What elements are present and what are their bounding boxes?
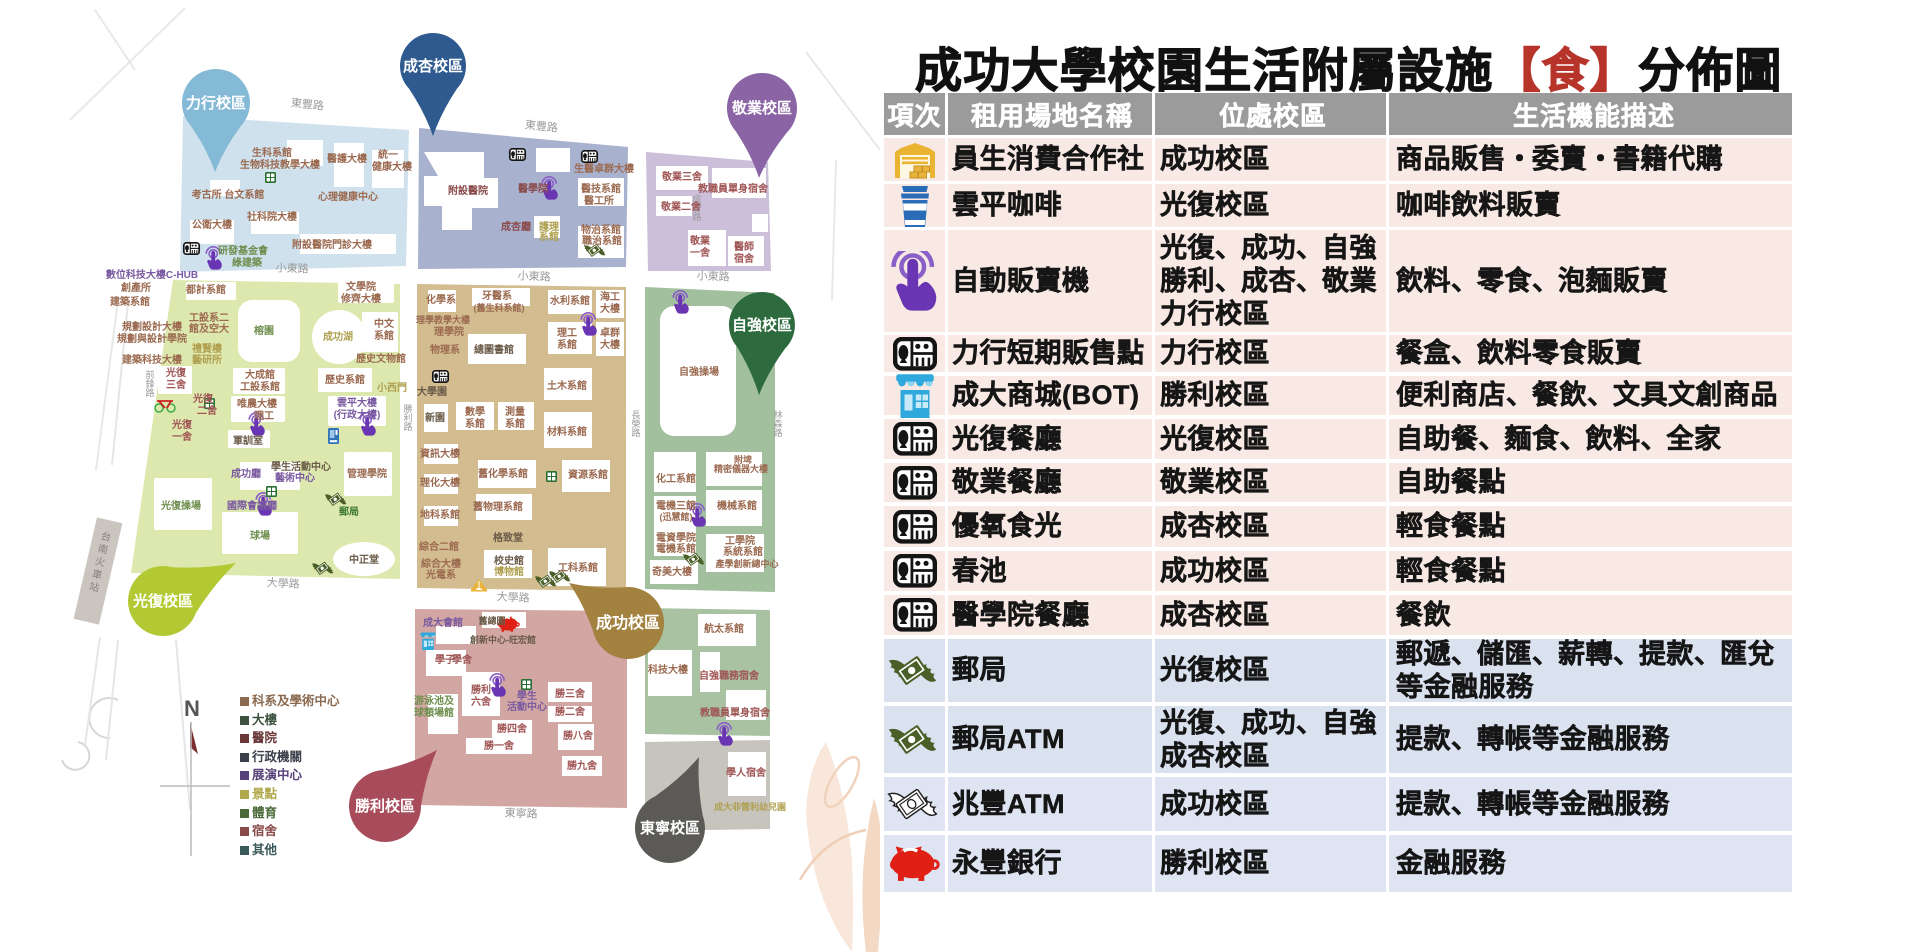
svg-text:電資學院: 電資學院 [656, 531, 696, 544]
svg-text:醫院: 醫院 [252, 730, 278, 745]
svg-text:舊總圖: 舊總圖 [478, 615, 505, 626]
svg-text:理學教學大樓: 理學教學大樓 [416, 314, 470, 325]
svg-text:榕園: 榕園 [254, 324, 274, 337]
svg-text:科系及學術中心: 科系及學術中心 [252, 693, 340, 708]
svg-text:新園: 新園 [425, 411, 445, 424]
svg-text:物理系: 物理系 [430, 343, 460, 356]
svg-text:規劃設計大樓: 規劃設計大樓 [122, 320, 182, 333]
svg-text:前鋒路: 前鋒路 [145, 369, 154, 398]
svg-text:生物科技教學大樓: 生物科技教學大樓 [240, 158, 320, 171]
svg-text:展演中心: 展演中心 [252, 767, 303, 782]
svg-text:地科系館: 地科系館 [420, 508, 460, 521]
svg-text:東寧路: 東寧路 [504, 805, 537, 820]
svg-text:牙醫系: 牙醫系 [482, 289, 512, 302]
svg-text:自強職務宿舍: 自強職務宿舍 [699, 669, 760, 682]
svg-text:心理健康中心: 心理健康中心 [318, 190, 378, 203]
svg-text:成功廳: 成功廳 [231, 467, 261, 480]
svg-text:附設醫院門診大樓: 附設醫院門診大樓 [292, 238, 372, 251]
svg-text:文學院: 文學院 [346, 280, 376, 293]
svg-text:化學系: 化學系 [426, 293, 456, 306]
svg-text:勝利路: 勝利路 [403, 403, 412, 432]
svg-text:六舍: 六舍 [471, 695, 492, 708]
svg-text:國際會議廳: 國際會議廳 [227, 499, 277, 512]
svg-text:景點: 景點 [252, 786, 278, 801]
svg-text:水利系館: 水利系館 [549, 294, 590, 307]
svg-text:規劃與設計學院: 規劃與設計學院 [117, 332, 187, 345]
svg-text:生科系館: 生科系館 [252, 146, 292, 159]
svg-text:雲平大樓: 雲平大樓 [337, 396, 377, 409]
svg-text:勝八舍: 勝八舍 [563, 729, 594, 742]
svg-text:建築系館: 建築系館 [109, 295, 150, 308]
svg-text:(行政大樓): (行政大樓) [334, 408, 381, 421]
svg-text:研發基金會: 研發基金會 [218, 244, 269, 257]
svg-text:大學園: 大學園 [417, 385, 447, 398]
svg-text:其他: 其他 [252, 842, 278, 857]
svg-text:自強操場: 自強操場 [679, 365, 719, 378]
svg-text:東豐路: 東豐路 [524, 118, 558, 134]
svg-text:東寧校區: 東寧校區 [640, 819, 700, 837]
svg-text:舊化學系館: 舊化學系館 [477, 467, 528, 480]
svg-text:職治系館: 職治系館 [582, 234, 622, 247]
svg-text:醫護大樓: 醫護大樓 [327, 152, 367, 165]
svg-text:(迅慧館): (迅慧館) [660, 511, 693, 522]
svg-text:資源系館: 資源系館 [568, 468, 608, 481]
svg-text:工設系二: 工設系二 [189, 311, 229, 324]
svg-text:理工: 理工 [557, 327, 577, 339]
svg-text:社科院大樓: 社科院大樓 [246, 210, 297, 223]
svg-text:電機系館: 電機系館 [656, 542, 696, 555]
svg-text:勝利: 勝利 [471, 683, 491, 696]
svg-text:成功湖: 成功湖 [323, 330, 353, 343]
svg-text:數位科技大樓C-HUB: 數位科技大樓C-HUB [106, 268, 198, 281]
svg-text:舊物理系館: 舊物理系館 [472, 500, 523, 513]
svg-text:小東路: 小東路 [696, 269, 729, 283]
svg-text:成大非營利幼兒園: 成大非營利幼兒園 [714, 801, 786, 812]
svg-text:科技大樓: 科技大樓 [648, 663, 688, 676]
svg-text:小東路: 小東路 [275, 261, 308, 275]
svg-text:大樓: 大樓 [600, 338, 620, 351]
svg-text:系統系館: 系統系館 [723, 545, 763, 558]
svg-text:成功校區: 成功校區 [596, 613, 660, 632]
svg-text:系館: 系館 [557, 338, 577, 351]
svg-text:大學路: 大學路 [496, 589, 530, 605]
svg-text:醫學院: 醫學院 [518, 182, 548, 195]
svg-text:工設系館: 工設系館 [240, 380, 280, 393]
svg-text:勝利校區: 勝利校區 [355, 797, 415, 815]
svg-text:附設醫院: 附設醫院 [448, 184, 488, 197]
svg-text:系館: 系館 [505, 417, 525, 430]
svg-text:醫師: 醫師 [734, 240, 754, 253]
svg-text:成杏校區: 成杏校區 [403, 57, 463, 75]
svg-text:機械系館: 機械系館 [717, 499, 757, 512]
svg-text:敬業二舍: 敬業二舍 [660, 200, 702, 213]
svg-text:系館: 系館 [539, 230, 559, 243]
svg-text:東豐路: 東豐路 [290, 96, 324, 112]
svg-text:工學院: 工學院 [725, 534, 755, 547]
svg-text:禮賢樓: 禮賢樓 [192, 342, 222, 355]
svg-text:光復: 光復 [165, 366, 187, 379]
svg-text:力行校區: 力行校區 [186, 94, 246, 112]
svg-text:土木系館: 土木系館 [547, 379, 587, 392]
svg-text:航太系館: 航太系館 [704, 622, 744, 635]
svg-text:勝二舍: 勝二舍 [555, 705, 586, 718]
svg-text:醫工所: 醫工所 [584, 194, 614, 207]
svg-text:資訊大樓: 資訊大樓 [420, 447, 460, 460]
svg-text:體育: 體育 [252, 805, 278, 820]
svg-text:綜合大樓: 綜合大樓 [421, 557, 461, 570]
svg-text:小東路: 小東路 [517, 269, 550, 283]
svg-text:勝四舍: 勝四舍 [497, 722, 528, 735]
svg-text:光復校區: 光復校區 [132, 592, 193, 610]
svg-text:學生: 學生 [517, 689, 537, 702]
svg-text:理化大樓: 理化大樓 [420, 476, 460, 489]
svg-text:行政機關: 行政機關 [251, 749, 302, 764]
svg-text:理工: 理工 [254, 410, 274, 422]
svg-text:考古所 台文系館: 考古所 台文系館 [192, 188, 265, 201]
svg-text:測量: 測量 [505, 405, 525, 418]
svg-text:敬業: 敬業 [689, 234, 711, 247]
svg-text:大學路: 大學路 [266, 575, 300, 591]
svg-text:化工系館: 化工系館 [656, 472, 696, 485]
svg-text:公衛大樓: 公衛大樓 [192, 218, 232, 231]
svg-text:(舊生科系館): (舊生科系館) [474, 302, 525, 313]
svg-text:健康大樓: 健康大樓 [372, 160, 412, 173]
svg-text:宿舍: 宿舍 [734, 252, 755, 265]
svg-text:大樓: 大樓 [252, 712, 278, 727]
svg-text:工科系館: 工科系館 [558, 561, 598, 574]
svg-text:統一: 統一 [378, 148, 398, 161]
svg-text:藝術中心: 藝術中心 [275, 471, 315, 484]
svg-text:球類場館: 球類場館 [414, 706, 454, 719]
svg-text:N: N [184, 696, 200, 721]
svg-text:敬業三舍: 敬業三舍 [661, 170, 703, 183]
svg-text:都計系館: 都計系館 [185, 283, 226, 296]
svg-text:系館: 系館 [465, 417, 485, 430]
svg-text:光復: 光復 [192, 392, 214, 405]
svg-text:勝九舍: 勝九舍 [567, 759, 598, 772]
svg-text:游泳池及: 游泳池及 [414, 694, 455, 707]
svg-text:光電系: 光電系 [425, 568, 456, 581]
svg-text:學人宿舍: 學人宿舍 [726, 766, 767, 779]
svg-text:總圖書館: 總圖書館 [474, 343, 514, 356]
svg-text:郵局: 郵局 [339, 505, 359, 518]
svg-text:創新中心-旺宏館: 創新中心-旺宏館 [469, 634, 536, 645]
svg-text:醫技系館: 醫技系館 [581, 182, 621, 195]
svg-text:教職員單身宿舍: 教職員單身宿舍 [697, 182, 769, 195]
svg-text:林森路: 林森路 [773, 409, 782, 438]
svg-text:光復: 光復 [171, 418, 193, 431]
svg-text:產學創新總中心: 產學創新總中心 [714, 558, 778, 569]
svg-text:中正堂: 中正堂 [349, 553, 379, 566]
svg-text:教職員單身宿舍: 教職員單身宿舍 [699, 706, 771, 719]
svg-text:精密儀器大樓: 精密儀器大樓 [714, 463, 768, 474]
svg-text:格致堂: 格致堂 [493, 531, 523, 544]
svg-text:大樓: 大樓 [600, 302, 620, 315]
svg-text:勝三舍: 勝三舍 [555, 687, 586, 700]
svg-text:成大會館: 成大會館 [423, 616, 463, 629]
svg-text:一舍: 一舍 [690, 246, 711, 259]
svg-text:學舍: 學舍 [452, 653, 473, 666]
svg-text:卓群: 卓群 [600, 326, 620, 339]
svg-text:奇美大樓: 奇美大樓 [652, 565, 692, 578]
svg-text:博物館: 博物館 [494, 565, 524, 578]
svg-text:勝一舍: 勝一舍 [484, 739, 515, 752]
svg-text:軍訓室: 軍訓室 [233, 434, 263, 447]
svg-text:敬業校區: 敬業校區 [731, 99, 792, 117]
svg-text:創產所: 創產所 [120, 281, 151, 294]
svg-text:宿舍: 宿舍 [252, 823, 278, 838]
svg-text:理學院: 理學院 [434, 325, 464, 338]
svg-text:活動中心: 活動中心 [507, 700, 547, 713]
svg-text:管理學院: 管理學院 [347, 467, 387, 480]
svg-text:小西門: 小西門 [376, 381, 407, 394]
svg-text:光復操場: 光復操場 [160, 499, 201, 512]
svg-text:唯農大樓: 唯農大樓 [237, 397, 277, 410]
svg-text:修齊大樓: 修齊大樓 [340, 292, 381, 305]
svg-text:二舍: 二舍 [197, 404, 218, 417]
svg-text:館及空大: 館及空大 [188, 322, 229, 335]
svg-text:成杏廳: 成杏廳 [501, 220, 531, 233]
svg-text:大成館: 大成館 [245, 368, 275, 381]
svg-text:自強校區: 自強校區 [732, 316, 792, 334]
svg-text:校史館: 校史館 [494, 554, 524, 567]
svg-text:長榮路: 長榮路 [631, 410, 640, 438]
svg-text:綠建築: 綠建築 [232, 256, 263, 269]
svg-text:綜合二館: 綜合二館 [419, 540, 459, 553]
svg-text:數學: 數學 [465, 405, 485, 418]
svg-text:物治系館: 物治系館 [581, 223, 621, 236]
svg-text:生醫卓群大樓: 生醫卓群大樓 [574, 162, 634, 175]
svg-text:學生活動中心: 學生活動中心 [271, 460, 331, 473]
svg-text:三舍: 三舍 [166, 378, 187, 391]
svg-text:藝研所: 藝研所 [192, 353, 222, 366]
svg-text:海工: 海工 [600, 290, 620, 303]
svg-text:歷史文物館: 歷史文物館 [356, 352, 406, 365]
svg-text:球場: 球場 [250, 529, 270, 542]
svg-text:建築科技大樓: 建築科技大樓 [121, 353, 182, 366]
svg-text:系館: 系館 [374, 329, 394, 342]
svg-text:一舍: 一舍 [172, 430, 193, 443]
svg-text:歷史系館: 歷史系館 [325, 373, 365, 386]
svg-text:電機三館: 電機三館 [656, 499, 696, 512]
svg-text:材料系館: 材料系館 [547, 425, 587, 438]
svg-text:中文: 中文 [374, 317, 395, 330]
